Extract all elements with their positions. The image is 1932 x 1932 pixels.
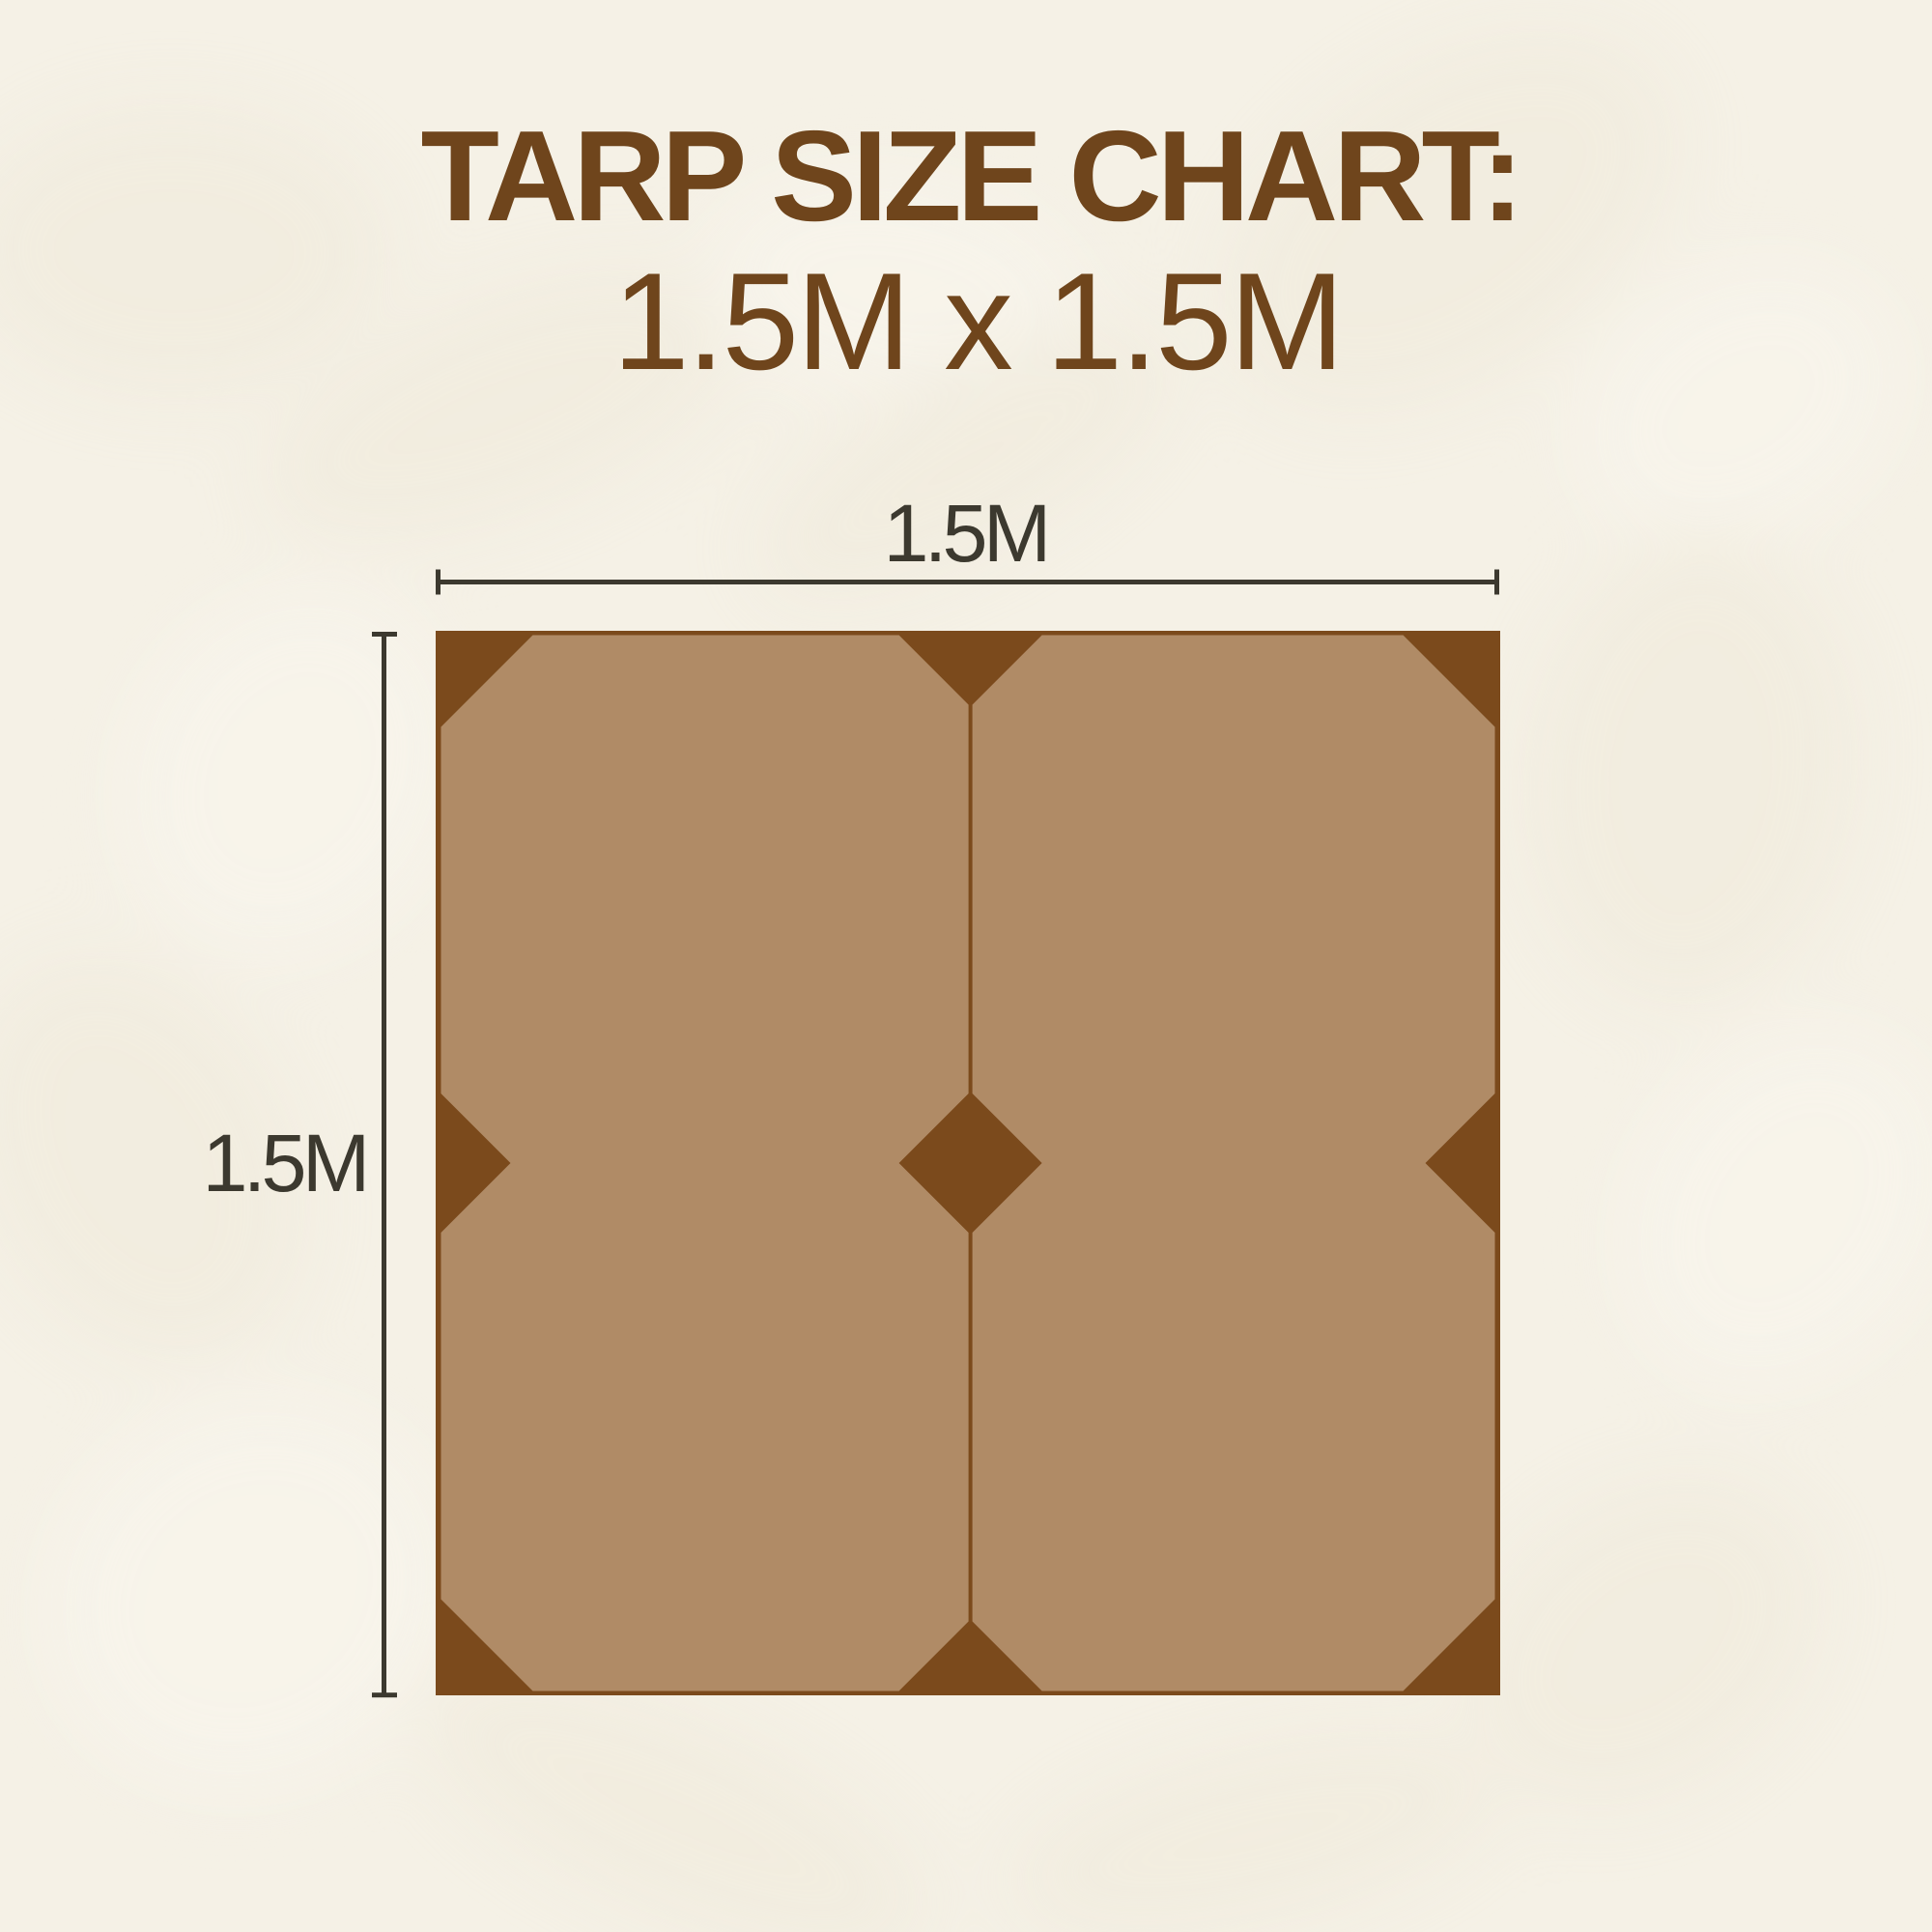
svg-text:1.5M x 1.5M: 1.5M x 1.5M — [612, 244, 1342, 399]
svg-text:1.5M: 1.5M — [202, 1118, 365, 1208]
svg-text:TARP SIZE CHART:: TARP SIZE CHART: — [421, 104, 1520, 248]
svg-text:1.5M: 1.5M — [883, 488, 1046, 579]
